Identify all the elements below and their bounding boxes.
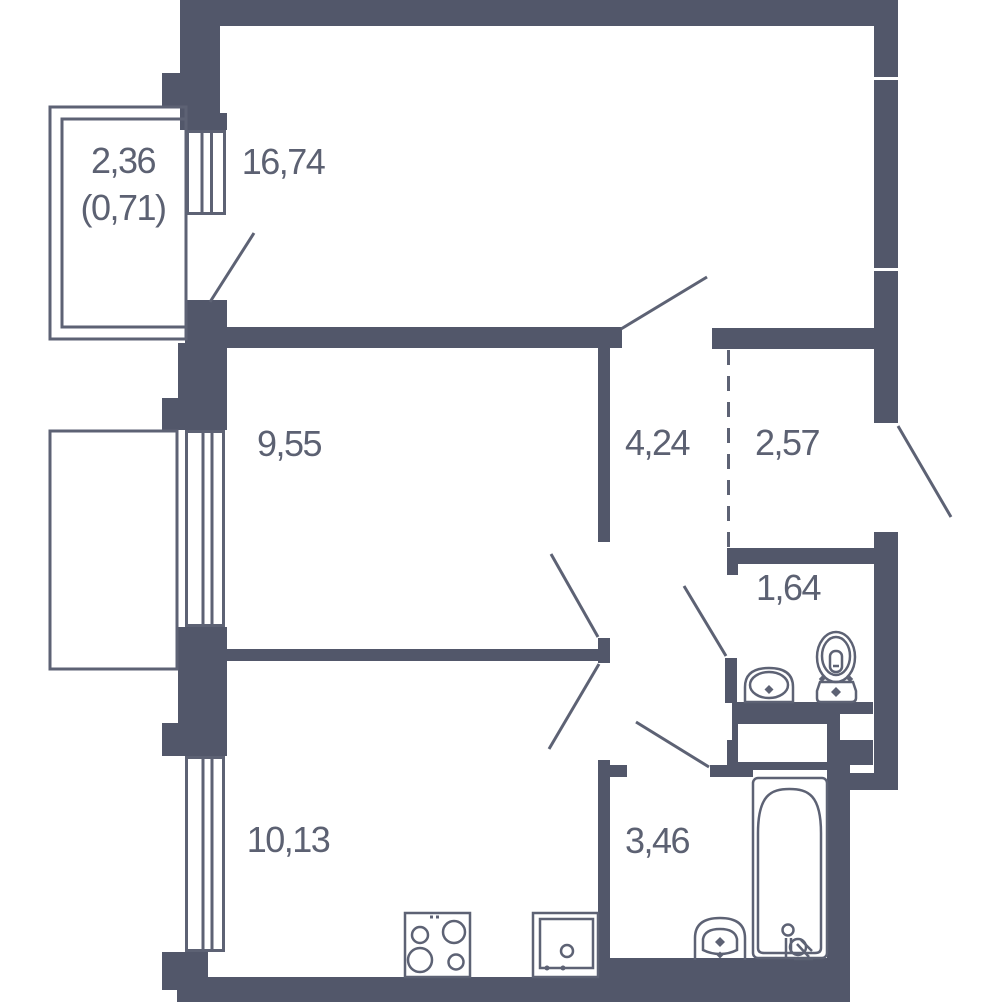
kitchen-sink-icon — [533, 913, 598, 977]
door-swing-line — [636, 722, 709, 767]
room-area-label: 2,36 — [91, 140, 155, 182]
room-area-label: 3,46 — [625, 820, 689, 862]
room-area-label: 1,64 — [756, 567, 820, 609]
room-area-label: 2,57 — [755, 422, 819, 464]
bathtub-icon — [753, 778, 827, 959]
room-area-label: 10,13 — [247, 819, 330, 861]
room-area-label: 9,55 — [257, 423, 321, 465]
window-symbol — [186, 130, 226, 215]
door-swing-line — [549, 664, 599, 749]
window-symbol — [185, 430, 225, 627]
balcony-2-outline — [50, 431, 177, 669]
toilet-icon — [817, 632, 856, 702]
window-symbol — [185, 756, 225, 952]
door-swing-line — [684, 586, 726, 656]
floor-plan: 2,36 (0,71) 16,74 9,55 4,24 2,57 1,64 10… — [0, 0, 1000, 1002]
room-area-label: 16,74 — [242, 141, 325, 183]
pedestal-sink-icon — [695, 918, 745, 960]
door-swing-line — [551, 554, 598, 637]
stove-icon — [405, 913, 470, 977]
door-swing-line — [621, 277, 707, 329]
door-swing-line — [898, 426, 951, 517]
vanity-sink-icon — [745, 668, 793, 702]
room-area-secondary-label: (0,71) — [80, 187, 165, 229]
room-area-label: 4,24 — [625, 422, 689, 464]
door-swing-line — [210, 233, 254, 302]
